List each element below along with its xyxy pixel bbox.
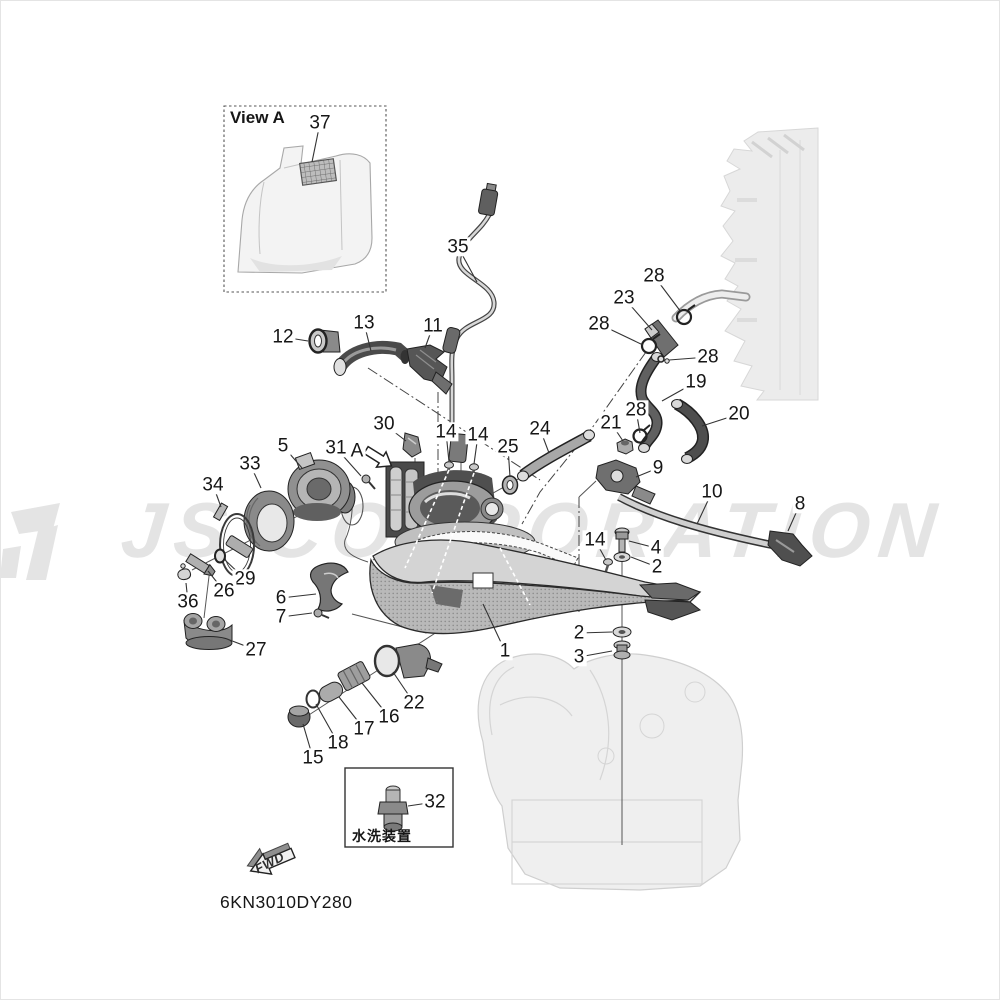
callout-5: 5 <box>276 436 291 455</box>
view-a-title: View A <box>230 108 285 128</box>
part-33-insert-cup <box>244 491 294 551</box>
callout-8: 8 <box>793 494 808 513</box>
callout-4: 4 <box>649 538 664 557</box>
callout-28: 28 <box>586 314 611 333</box>
callout-28: 28 <box>641 266 666 285</box>
callout-15: 15 <box>300 748 325 767</box>
callout-25: 25 <box>495 437 520 456</box>
part-2-washer <box>613 627 631 637</box>
callout-14: 14 <box>433 422 458 441</box>
part-17-cylinder <box>317 679 346 704</box>
callout-35: 35 <box>445 237 470 256</box>
part-2-washer <box>614 553 630 562</box>
callout-27: 27 <box>243 640 268 659</box>
callout-28: 28 <box>695 347 720 366</box>
callout-21: 21 <box>598 413 623 432</box>
part-22-cover <box>375 644 442 678</box>
callout-3: 3 <box>572 647 587 666</box>
callout-28: 28 <box>623 400 648 419</box>
callout-37: 37 <box>307 113 332 132</box>
diagram-canvas <box>0 0 1000 1000</box>
callout-A: A <box>349 441 366 460</box>
part-6-fork <box>311 563 348 611</box>
part-13-hose-group <box>310 330 453 395</box>
callout-14: 14 <box>582 530 607 549</box>
callout-33: 33 <box>237 454 262 473</box>
part-8-clamp <box>768 531 812 566</box>
part-12-clamp <box>310 330 341 353</box>
callout-13: 13 <box>351 313 376 332</box>
part-3-grommet <box>614 641 630 659</box>
callout-7: 7 <box>274 607 289 626</box>
callout-31: 31 <box>323 438 348 457</box>
thermostat-group <box>288 644 442 727</box>
part-36-clip <box>178 564 191 580</box>
callout-18: 18 <box>325 733 350 752</box>
callout-32: 32 <box>422 792 447 811</box>
drawing-code: 6KN3010DY280 <box>220 892 352 913</box>
callout-14: 14 <box>465 425 490 444</box>
part-15-cap <box>288 706 310 727</box>
callout-17: 17 <box>351 719 376 738</box>
faded-bracket-drawing <box>478 654 742 890</box>
callout-6: 6 <box>274 588 289 607</box>
callout-16: 16 <box>376 707 401 726</box>
callout-24: 24 <box>527 419 552 438</box>
callout-11: 11 <box>421 316 445 335</box>
callout-20: 20 <box>726 404 751 423</box>
flushing-device-caption: 水洗装置 <box>352 826 412 846</box>
part-29-collar <box>215 550 225 563</box>
callout-12: 12 <box>270 327 295 346</box>
part-25-grommet <box>503 476 518 494</box>
callout-22: 22 <box>401 693 426 712</box>
callout-30: 30 <box>371 414 396 433</box>
callout-23: 23 <box>611 288 636 307</box>
callout-2: 2 <box>650 557 665 576</box>
part-30-bracket <box>403 433 421 457</box>
part-4-bolt <box>615 528 629 552</box>
callout-10: 10 <box>699 482 724 501</box>
part-35-connector <box>478 183 499 216</box>
part-37-pad <box>300 159 337 186</box>
callout-9: 9 <box>651 458 666 477</box>
parts-diagram-page: JS CORPORATION <box>0 0 1000 1000</box>
callout-2: 2 <box>572 623 587 642</box>
callout-1: 1 <box>498 641 513 660</box>
part-11-bracket <box>407 345 452 394</box>
callout-26: 26 <box>211 581 236 600</box>
part-18-oring <box>307 691 320 708</box>
callout-19: 19 <box>683 372 708 391</box>
callout-36: 36 <box>175 592 200 611</box>
view-a-inset <box>224 106 386 292</box>
part-27-housing <box>184 614 232 650</box>
part-31-screw <box>362 475 375 489</box>
part-21-nut <box>617 439 633 454</box>
callout-34: 34 <box>200 475 225 494</box>
